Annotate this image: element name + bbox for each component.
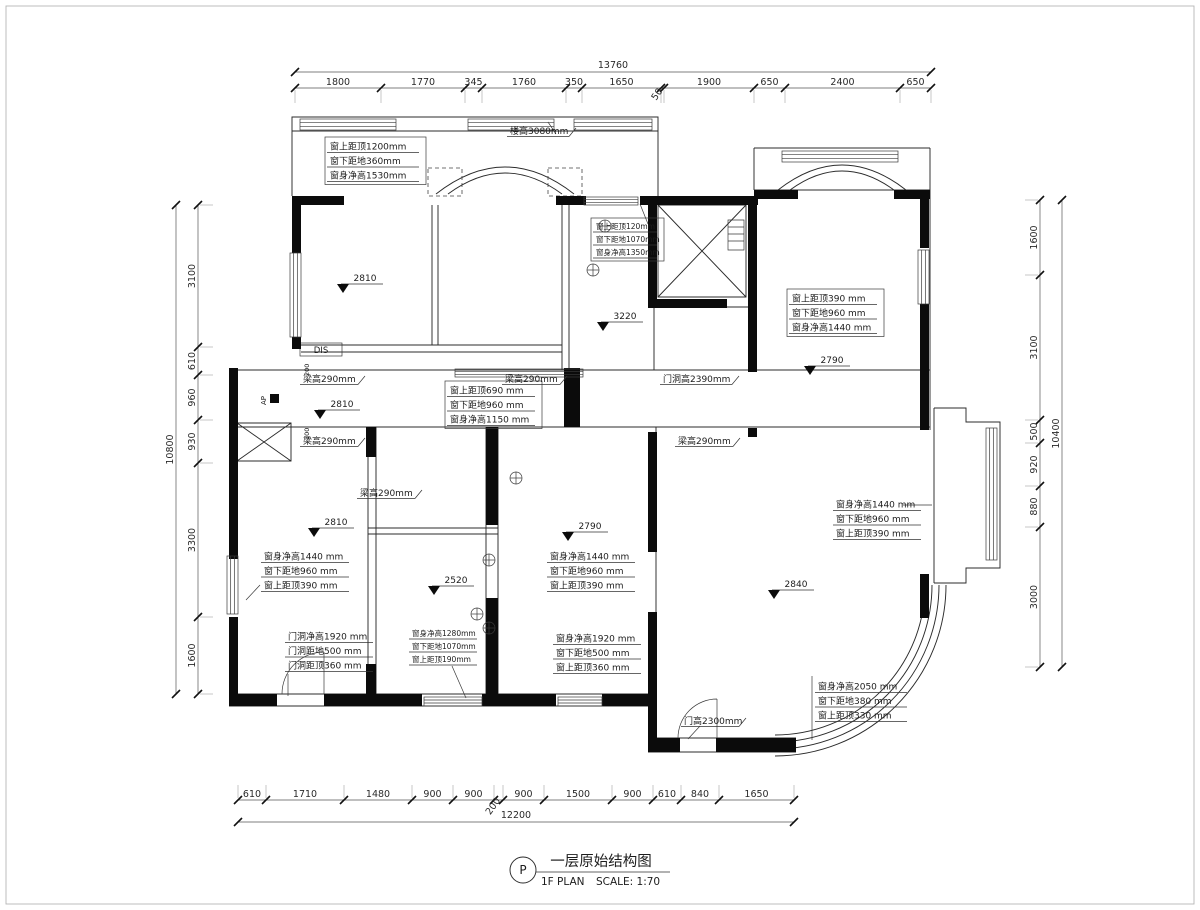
level-value-3: 2810 xyxy=(331,400,354,410)
dim-top-seg-0: 1800 xyxy=(326,77,350,88)
dim-left-seg-2: 960 xyxy=(187,388,198,406)
wall-segment-6 xyxy=(292,337,301,349)
dim-right-seg-5: 3000 xyxy=(1029,585,1040,609)
dim-top-seg-5: 1650 xyxy=(609,77,633,88)
note-win_lower_left-line-2: 窗上距顶390 mm xyxy=(264,580,338,592)
level-marker-triangle-3 xyxy=(314,410,326,419)
dim-top-seg-9: 2400 xyxy=(830,77,854,88)
dim-total-left: 10800 xyxy=(165,434,176,464)
dim-bottom-seg-10: 840 xyxy=(691,789,709,800)
note-win_lower_left-line-0: 窗身净高1440 mm xyxy=(264,551,343,563)
wall-segment-0 xyxy=(292,196,344,205)
note-win_top_left-line-2: 窗身净高1530mm xyxy=(330,170,406,182)
title-block: P 一层原始结构图 1F PLAN SCALE: 1:70 xyxy=(510,853,670,888)
dim-right-seg-0: 1600 xyxy=(1029,225,1040,249)
window-h-7 xyxy=(558,697,602,706)
dim-bottom-seg-1: 1710 xyxy=(293,789,317,800)
note-door_lower_left-line-0: 门洞净高1920 mm xyxy=(288,631,367,643)
window-h-4 xyxy=(782,151,898,162)
note-beam_height-6: 梁高290mm xyxy=(360,487,413,499)
dim-bottom-seg-8: 900 xyxy=(623,789,641,800)
level-value-5: 2790 xyxy=(579,522,602,532)
note-win_bottom_small-line-2: 窗上距顶190mm xyxy=(412,654,471,664)
note-win_lower_mid-line-1: 窗下距地960 mm xyxy=(550,565,624,577)
dim-bottom-seg-7: 1500 xyxy=(566,789,590,800)
wall-segment-17 xyxy=(229,617,238,697)
wall-segment-1 xyxy=(556,196,586,205)
wall-segment-5 xyxy=(292,205,301,253)
window-h-2 xyxy=(574,119,652,130)
plan-title-en: 1F PLAN xyxy=(541,876,585,888)
note-door_height-2: 门高2300mm xyxy=(684,715,742,727)
note-door_lower_left-line-1: 门洞距地500 mm xyxy=(288,645,362,657)
wall-segment-25 xyxy=(716,738,796,752)
note-win_hall-line-2: 窗身净高1350mm xyxy=(596,247,660,257)
window-h-0 xyxy=(300,119,396,130)
note-win_top_left-line-0: 窗上距顶1200mm xyxy=(330,141,406,153)
dim-top-seg-1: 1770 xyxy=(411,77,435,88)
note-win_right_top-line-1: 窗下距地960 mm xyxy=(792,307,866,319)
wall-segment-20 xyxy=(378,694,422,706)
note-win_hall-line-0: 窗上距顶120mm xyxy=(596,221,655,231)
dim-total-right: 10400 xyxy=(1051,418,1062,448)
wall-segment-3 xyxy=(754,190,798,199)
dim-total-bottom: 12200 xyxy=(501,810,531,821)
level-value-7: 2840 xyxy=(785,580,808,590)
note-door_opening_height-1: 门洞高2390mm xyxy=(663,373,730,385)
wall-segment-28 xyxy=(486,427,498,525)
note-win_corridor-line-1: 窗下距地960 mm xyxy=(450,399,524,411)
note-win_lower_left-line-1: 窗下距地960 mm xyxy=(264,565,338,577)
window-v-3 xyxy=(986,428,997,560)
note-win_corridor-line-2: 窗身净高1150 mm xyxy=(450,414,529,426)
level-value-2: 2790 xyxy=(821,356,844,366)
right-balcony-band xyxy=(754,148,930,190)
note-win_lower_mid-line-0: 窗身净高1440 mm xyxy=(550,551,629,563)
dim-total-top: 13760 xyxy=(598,60,628,71)
elevator-lobby xyxy=(654,307,748,370)
wall-segment-9 xyxy=(748,428,757,437)
note-win_right_bay-line-1: 窗下距地960 mm xyxy=(836,513,910,525)
wall-segment-15 xyxy=(229,368,238,419)
duct-shaft xyxy=(237,423,291,461)
dim-left-seg-5: 1600 xyxy=(187,643,198,667)
wall-segment-12 xyxy=(920,304,929,430)
level-marker-triangle-0 xyxy=(337,284,349,293)
wall-segment-18 xyxy=(229,694,277,706)
level-marker-triangle-6 xyxy=(428,586,440,595)
wall-segment-23 xyxy=(602,694,656,706)
wall-segment-30 xyxy=(366,427,376,457)
level-marker-triangle-7 xyxy=(768,590,780,599)
wall-segment-10 xyxy=(648,299,727,308)
dim-right-seg-3: 920 xyxy=(1029,455,1040,473)
level-marker-triangle-1 xyxy=(597,322,609,331)
note-win_bottom_small-line-0: 窗身净高1280mm xyxy=(412,628,476,638)
level-value-1: 3220 xyxy=(614,312,637,322)
wall-segment-16 xyxy=(229,419,238,559)
note-win_lower_mid2-line-0: 窗身净高1920 mm xyxy=(556,633,635,645)
balcony-arch xyxy=(436,167,574,194)
dim-top-seg-3: 1760 xyxy=(512,77,536,88)
sheet-border xyxy=(6,6,1194,904)
level-marker-triangle-4 xyxy=(308,528,320,537)
note-win_lower_mid-line-2: 窗上距顶390 mm xyxy=(550,580,624,592)
window-h-6 xyxy=(424,697,482,706)
dim-top-seg-2: 345 xyxy=(464,77,482,88)
dim-bottom-seg-6: 900 xyxy=(514,789,532,800)
wall-segment-13 xyxy=(920,574,929,618)
plan-marker-letter: P xyxy=(519,863,526,877)
dim-top-seg-10: 650 xyxy=(906,77,924,88)
wall-segment-22 xyxy=(500,694,556,706)
plan-canvas: 1800177034517603501650501900650240065013… xyxy=(0,0,1200,910)
plan-title-cn: 一层原始结构图 xyxy=(550,853,652,870)
note-win_hall-line-1: 窗下距地1070mm xyxy=(596,234,660,244)
generated-layers: 1800177034517603501650501900650240065013… xyxy=(165,60,1066,826)
dim-top-seg-7: 1900 xyxy=(697,77,721,88)
level-value-4: 2810 xyxy=(325,518,348,528)
dim-right-seg-1: 3100 xyxy=(1029,335,1040,359)
level-value-0: 2810 xyxy=(354,274,377,284)
note-win_bottom_right-line-0: 窗身净高2050 mm xyxy=(818,681,897,693)
note-win_right_top-line-0: 窗上距顶390 mm xyxy=(792,293,866,305)
wall-segment-2 xyxy=(640,196,758,205)
wall-segment-29 xyxy=(486,598,498,696)
level-value-6: 2520 xyxy=(445,576,468,586)
wall-segment-11 xyxy=(920,190,929,248)
dim-right-seg-2: 500 xyxy=(1029,422,1040,440)
window-v-1 xyxy=(918,250,929,304)
wall-segment-26 xyxy=(648,432,657,552)
note-win_bottom_right-line-2: 窗上距顶330 mm xyxy=(818,710,892,722)
small-dim-200-a: 200 xyxy=(303,364,311,376)
small-dim-200-b: 200 xyxy=(303,428,311,440)
note-win_bottom_right-line-1: 窗下距地380 mm xyxy=(818,695,892,707)
dim-bottom-seg-11: 1650 xyxy=(744,789,768,800)
ap-label: AP xyxy=(260,396,268,405)
note-win_top_left-line-1: 窗下距地360mm xyxy=(330,155,401,167)
note-beam_height-4: 梁高290mm xyxy=(505,373,558,385)
wall-segment-27 xyxy=(648,612,657,738)
dim-bottom-seg-3: 900 xyxy=(423,789,441,800)
window-h-3 xyxy=(584,197,638,205)
plan-scale: SCALE: 1:70 xyxy=(596,876,660,888)
dim-right-seg-4: 880 xyxy=(1029,497,1040,515)
dim-bottom-seg-2: 1480 xyxy=(366,789,390,800)
note-slab_height-0: 楼高3080mm xyxy=(510,125,568,137)
ap-outlet-symbol xyxy=(270,394,279,403)
window-v-2 xyxy=(227,556,238,614)
dim-left-seg-0: 3100 xyxy=(187,264,198,288)
dim-left-seg-4: 3300 xyxy=(187,528,198,552)
wall-segment-8 xyxy=(748,196,757,372)
note-win_right_top-line-2: 窗身净高1440 mm xyxy=(792,322,871,334)
window-v-0 xyxy=(290,253,301,337)
dim-left-seg-3: 930 xyxy=(187,432,198,450)
note-win_lower_mid2-line-1: 窗下距地500 mm xyxy=(556,647,630,659)
dis-label: DIS xyxy=(314,346,328,356)
ladder-symbol xyxy=(728,220,744,250)
dim-left-seg-1: 610 xyxy=(187,352,198,370)
dim-top-seg-8: 650 xyxy=(760,77,778,88)
note-win_right_bay-line-2: 窗上距顶390 mm xyxy=(836,528,910,540)
note-win_bottom_small-line-1: 窗下距地1070mm xyxy=(412,641,476,651)
dim-top-seg-4: 350 xyxy=(565,77,583,88)
note-beam_height-7: 梁高290mm xyxy=(678,435,731,447)
dim-bottom-seg-4: 900 xyxy=(464,789,482,800)
dim-bottom-seg-0: 610 xyxy=(243,789,261,800)
level-marker-triangle-2 xyxy=(804,366,816,375)
note-win_corridor-line-0: 窗上距顶690 mm xyxy=(450,385,524,397)
note-win_lower_mid2-line-2: 窗上距顶360 mm xyxy=(556,662,630,674)
wall-segment-31 xyxy=(366,664,376,696)
dim-bottom-seg-9: 610 xyxy=(658,789,676,800)
elevator-shaft xyxy=(658,205,746,297)
level-marker-triangle-5 xyxy=(562,532,574,541)
note-win_right_bay-line-0: 窗身净高1440 mm xyxy=(836,499,915,511)
floor-plan-drawing: 1800177034517603501650501900650240065013… xyxy=(0,0,1200,910)
wall-segment-24 xyxy=(648,738,680,752)
right-bay-window xyxy=(934,408,1000,583)
note-door_lower_left-line-2: 门洞距顶360 mm xyxy=(288,660,362,672)
